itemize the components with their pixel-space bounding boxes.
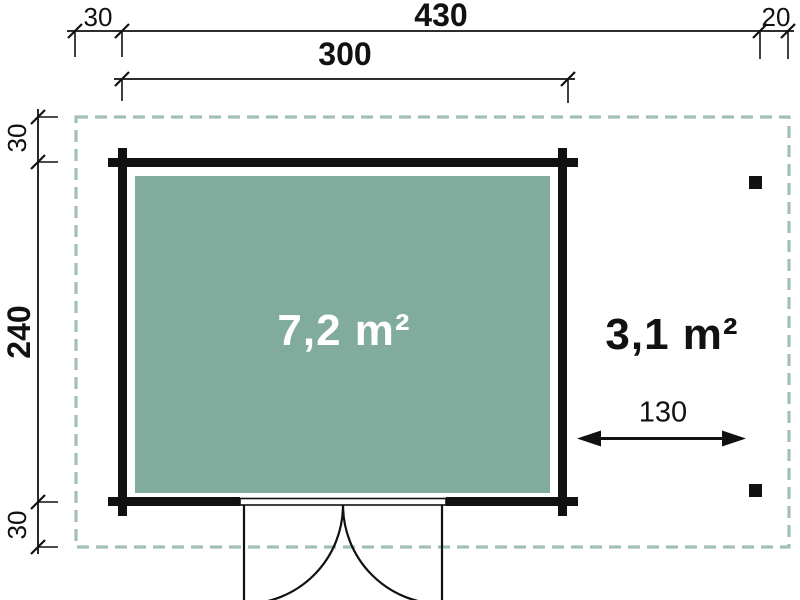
dimension-line-top-cabin	[114, 72, 575, 103]
dim-label-cabin-depth: 240	[3, 305, 35, 358]
dim-label-left-top-offset: 30	[4, 124, 30, 153]
door-threshold	[240, 499, 446, 506]
door-double-swing	[240, 499, 446, 600]
area-label-interior: 7,2 m²	[277, 309, 410, 353]
dim-label-left-bottom-offset: 30	[4, 511, 30, 540]
arrow-head-left-icon	[577, 431, 601, 447]
post-bottom	[749, 484, 762, 497]
dim-label-side-width: 130	[639, 399, 687, 428]
door-swing-arc-right	[343, 505, 442, 600]
dim-label-overall-width: 430	[414, 0, 467, 31]
area-label-side: 3,1 m²	[605, 313, 738, 357]
door-swing-arc-left	[244, 505, 343, 600]
floor-plan-drawing	[0, 0, 800, 600]
width-arrow	[577, 431, 746, 447]
dim-label-top-left-offset: 30	[84, 4, 113, 30]
dim-label-cabin-width: 300	[318, 38, 371, 70]
arrow-head-right-icon	[722, 431, 746, 447]
floor-plan: 30 430 20 300 30 240 30 7,2 m² 3,1 m² 13…	[0, 0, 800, 600]
dim-label-top-right-offset: 20	[762, 4, 791, 30]
post-top	[749, 176, 762, 189]
